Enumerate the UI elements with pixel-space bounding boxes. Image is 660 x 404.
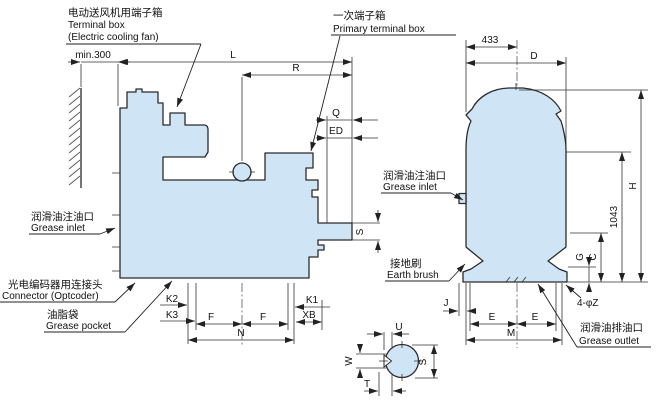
fan-terminal-box-label-cn: 电动送风机用端子箱: [68, 6, 163, 19]
dim-label-r: R: [292, 63, 299, 74]
primary-terminal-box-label-cn: 一次端子箱: [333, 9, 386, 22]
grease-inlet-right-label-en: Grease inlet: [383, 182, 437, 193]
connector-leader: [115, 283, 135, 302]
dim-label-q: Q: [332, 108, 340, 119]
grease-pocket-label-cn: 油脂袋: [47, 308, 79, 321]
dim-label-n: N: [237, 328, 244, 339]
dim-label-l: L: [230, 50, 236, 61]
connector-label-cn: 光电编码器用连接头: [8, 278, 103, 291]
dim-label-s-shaft: S: [355, 228, 366, 235]
grease-outlet-label-en: Grease outlet: [579, 336, 639, 347]
grease-pocket-leader: [125, 281, 172, 332]
grease-fitting-ticks: [112, 173, 120, 271]
dim-label-s-end: S: [418, 358, 429, 365]
dim-label-k2: K2: [166, 294, 179, 305]
earth-brush-label-cn: 接地刷: [390, 257, 422, 270]
dim-label-min300: min.300: [75, 50, 111, 61]
dim-label-t: T: [364, 379, 370, 390]
motor-side-outline: [120, 89, 352, 278]
dim-label-xb: XB: [302, 310, 316, 321]
lifting-eyebolt: [233, 163, 251, 181]
grease-inlet-left-label-cn: 润滑油注油口: [31, 210, 94, 223]
wall-hatch: [69, 88, 80, 185]
dim-label-m: M: [507, 328, 515, 339]
bolt-holes-leader: [566, 285, 581, 298]
dim-label-c: C: [588, 253, 599, 260]
grease-pocket-label-en: Grease pocket: [46, 321, 111, 332]
dim-label-f1: F: [208, 312, 214, 323]
fan-box-leader: [177, 44, 201, 107]
dim-label-g: G: [575, 253, 586, 261]
dim-label-j: J: [444, 298, 449, 309]
grease-outlet-leader: [538, 284, 577, 347]
dim-label-e2: E: [532, 312, 539, 323]
grease-inlet-left-label-en: Grease inlet: [31, 223, 85, 234]
dim-label-h: H: [628, 182, 639, 189]
primary-terminal-box-label-en: Primary terminal box: [333, 24, 425, 35]
grease-inlet-left-leader: [100, 228, 115, 234]
dim-label-ed: ED: [329, 126, 343, 137]
dim-label-u: U: [395, 322, 402, 333]
dim-label-w: W: [344, 356, 355, 366]
fan-terminal-box-label-en1: Terminal box: [68, 20, 125, 31]
motor-end-outline: [463, 88, 567, 282]
earth-brush-label-en: Earth brush: [387, 270, 439, 281]
side-view: [112, 89, 352, 278]
dim-label-phiz: 4-φZ: [577, 298, 598, 309]
end-view: [459, 83, 567, 282]
mounting-wall: [69, 88, 81, 188]
dim-label-f2: F: [260, 312, 266, 323]
dim-label-433: 433: [482, 35, 499, 46]
dim-label-k3: K3: [166, 310, 179, 321]
dim-label-e1: E: [489, 312, 496, 323]
grease-outlet-label-cn: 润滑油排油口: [580, 321, 643, 334]
dim-label-k1: K1: [306, 295, 319, 306]
engineering-drawing: min.300 L R Q ED S K2 K1 K3 XB F F N 433…: [0, 0, 660, 404]
dim-label-1043: 1043: [609, 205, 620, 228]
grease-inlet-right-label-cn: 润滑油注油口: [383, 169, 446, 182]
drawing-page: min.300 L R Q ED S K2 K1 K3 XB F F N 433…: [0, 0, 660, 404]
dim-label-d: D: [530, 51, 537, 62]
connector-label-en: Connector (Optcoder): [2, 291, 99, 302]
fan-terminal-box-label-en2: (Electric cooling fan): [68, 32, 159, 43]
